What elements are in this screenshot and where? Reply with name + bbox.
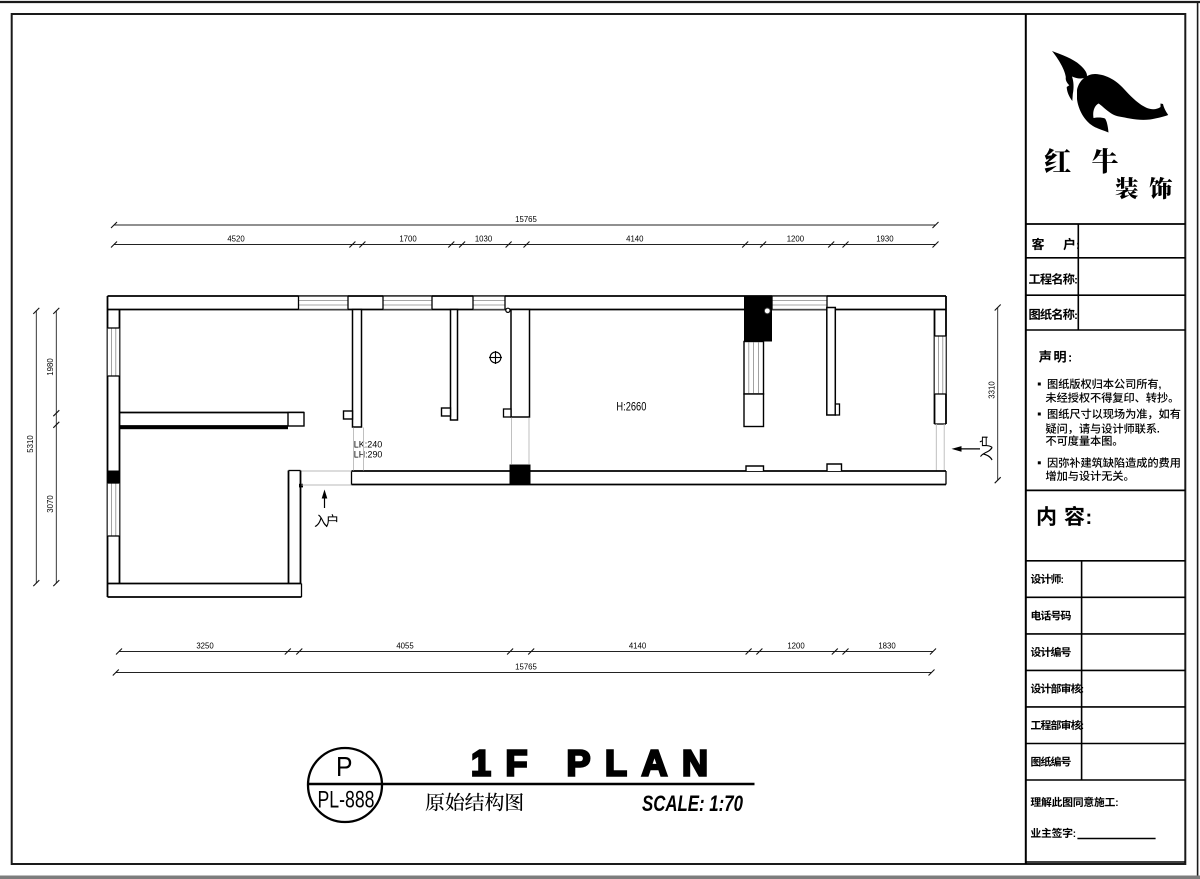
svg-text:15765: 15765 xyxy=(515,662,537,671)
svg-text:1830: 1830 xyxy=(878,641,896,650)
svg-text:P: P xyxy=(336,751,353,782)
svg-text::: : xyxy=(1076,238,1080,252)
svg-text:3250: 3250 xyxy=(196,641,214,650)
svg-text::: : xyxy=(1061,575,1064,586)
svg-text:3070: 3070 xyxy=(46,495,55,513)
svg-text::: : xyxy=(1115,798,1118,809)
svg-text::: : xyxy=(1086,507,1093,529)
svg-text:1980: 1980 xyxy=(46,358,55,376)
svg-text:H:2660: H:2660 xyxy=(616,400,646,414)
svg-text:,: , xyxy=(1159,380,1162,391)
svg-text::: : xyxy=(1074,275,1078,287)
svg-text:4140: 4140 xyxy=(629,641,647,650)
svg-text:1700: 1700 xyxy=(399,234,417,243)
svg-text::: : xyxy=(1081,685,1084,696)
svg-text:3310: 3310 xyxy=(988,381,997,399)
svg-text:.: . xyxy=(1157,425,1160,436)
svg-text:1F PLAN: 1F PLAN xyxy=(471,743,723,784)
svg-text:4520: 4520 xyxy=(227,234,245,243)
svg-text:1200: 1200 xyxy=(787,641,805,650)
svg-text:1200: 1200 xyxy=(787,234,805,243)
svg-text:1930: 1930 xyxy=(876,234,894,243)
svg-text:LK:240: LK:240 xyxy=(354,440,383,450)
svg-text:LH:290: LH:290 xyxy=(354,450,383,460)
svg-text::: : xyxy=(1068,351,1072,365)
svg-text:4055: 4055 xyxy=(396,641,414,650)
svg-text:SCALE: 1:70: SCALE: 1:70 xyxy=(642,791,743,816)
svg-text:15765: 15765 xyxy=(515,215,537,224)
svg-text:1030: 1030 xyxy=(475,234,493,243)
svg-text:PL-888: PL-888 xyxy=(318,787,375,814)
svg-text:4140: 4140 xyxy=(626,234,644,243)
svg-text:5310: 5310 xyxy=(26,435,35,453)
svg-text::: : xyxy=(1073,829,1076,840)
svg-text::: : xyxy=(1081,721,1084,732)
svg-text::: : xyxy=(1074,310,1078,322)
